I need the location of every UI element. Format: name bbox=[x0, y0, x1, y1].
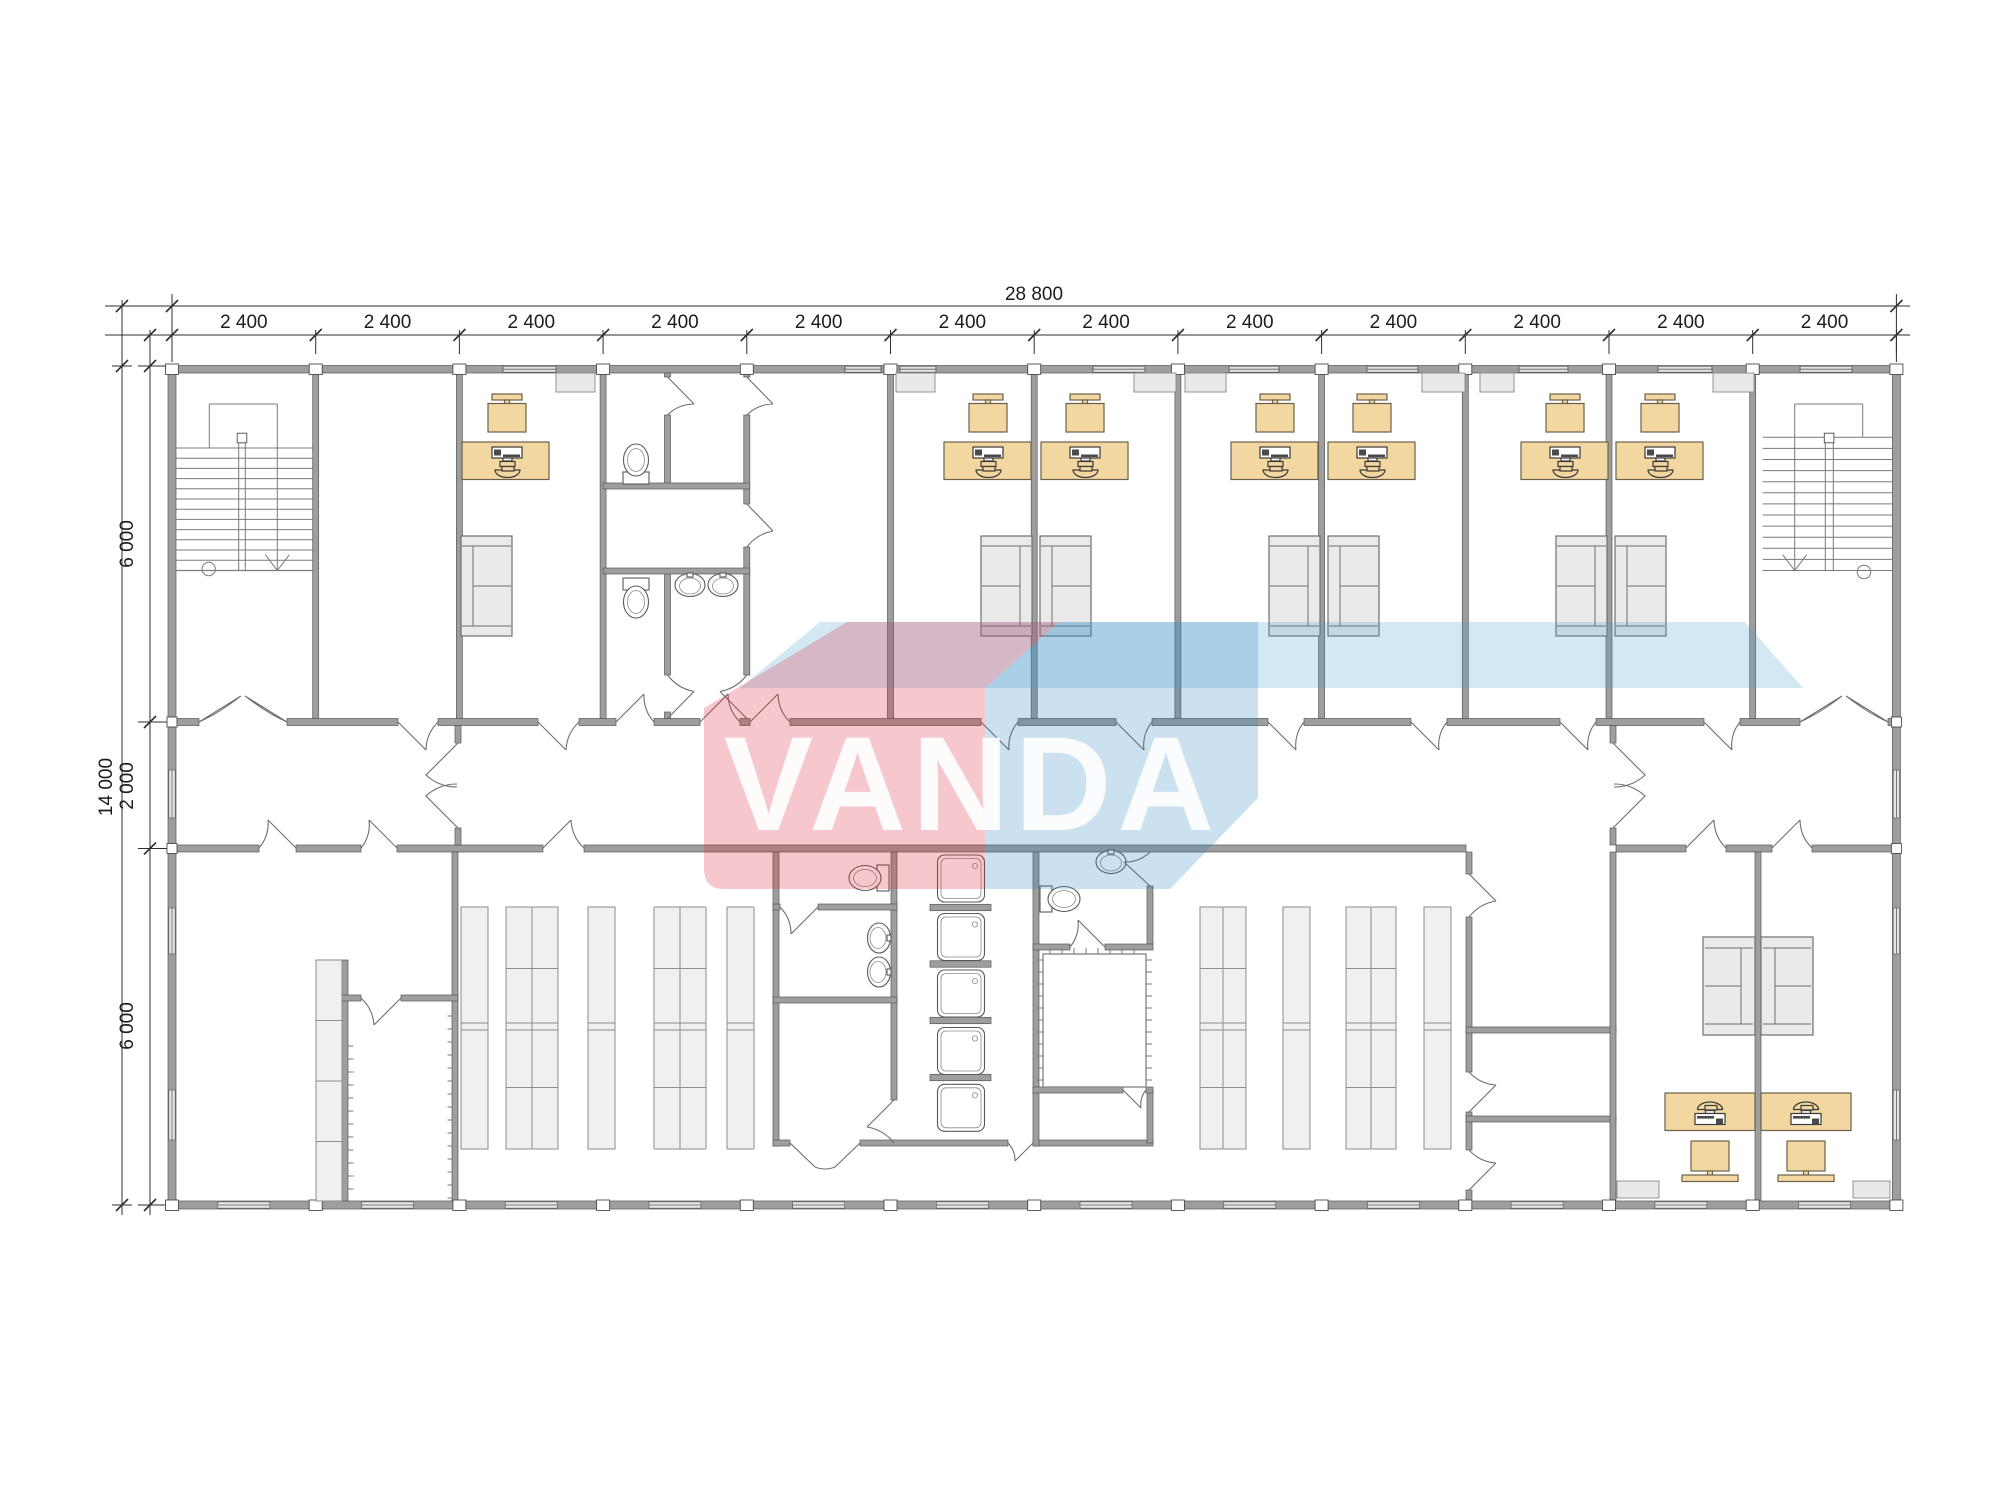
svg-text:2 400: 2 400 bbox=[1226, 312, 1274, 333]
svg-text:2 400: 2 400 bbox=[1801, 312, 1849, 333]
svg-text:2 400: 2 400 bbox=[507, 312, 555, 333]
svg-text:2 400: 2 400 bbox=[220, 312, 268, 333]
svg-text:6 000: 6 000 bbox=[117, 520, 138, 568]
svg-text:2 400: 2 400 bbox=[939, 312, 987, 333]
svg-text:14 000: 14 000 bbox=[96, 758, 117, 816]
svg-text:2 400: 2 400 bbox=[1082, 312, 1130, 333]
svg-text:2 400: 2 400 bbox=[1657, 312, 1705, 333]
svg-text:6 000: 6 000 bbox=[117, 1002, 138, 1050]
svg-text:2 400: 2 400 bbox=[651, 312, 699, 333]
svg-text:2 000: 2 000 bbox=[117, 762, 138, 810]
svg-text:VANDA: VANDA bbox=[724, 710, 1221, 859]
svg-text:2 400: 2 400 bbox=[1370, 312, 1418, 333]
svg-text:2 400: 2 400 bbox=[1513, 312, 1561, 333]
svg-text:28 800: 28 800 bbox=[1005, 284, 1063, 305]
svg-text:2 400: 2 400 bbox=[795, 312, 843, 333]
svg-text:2 400: 2 400 bbox=[364, 312, 412, 333]
